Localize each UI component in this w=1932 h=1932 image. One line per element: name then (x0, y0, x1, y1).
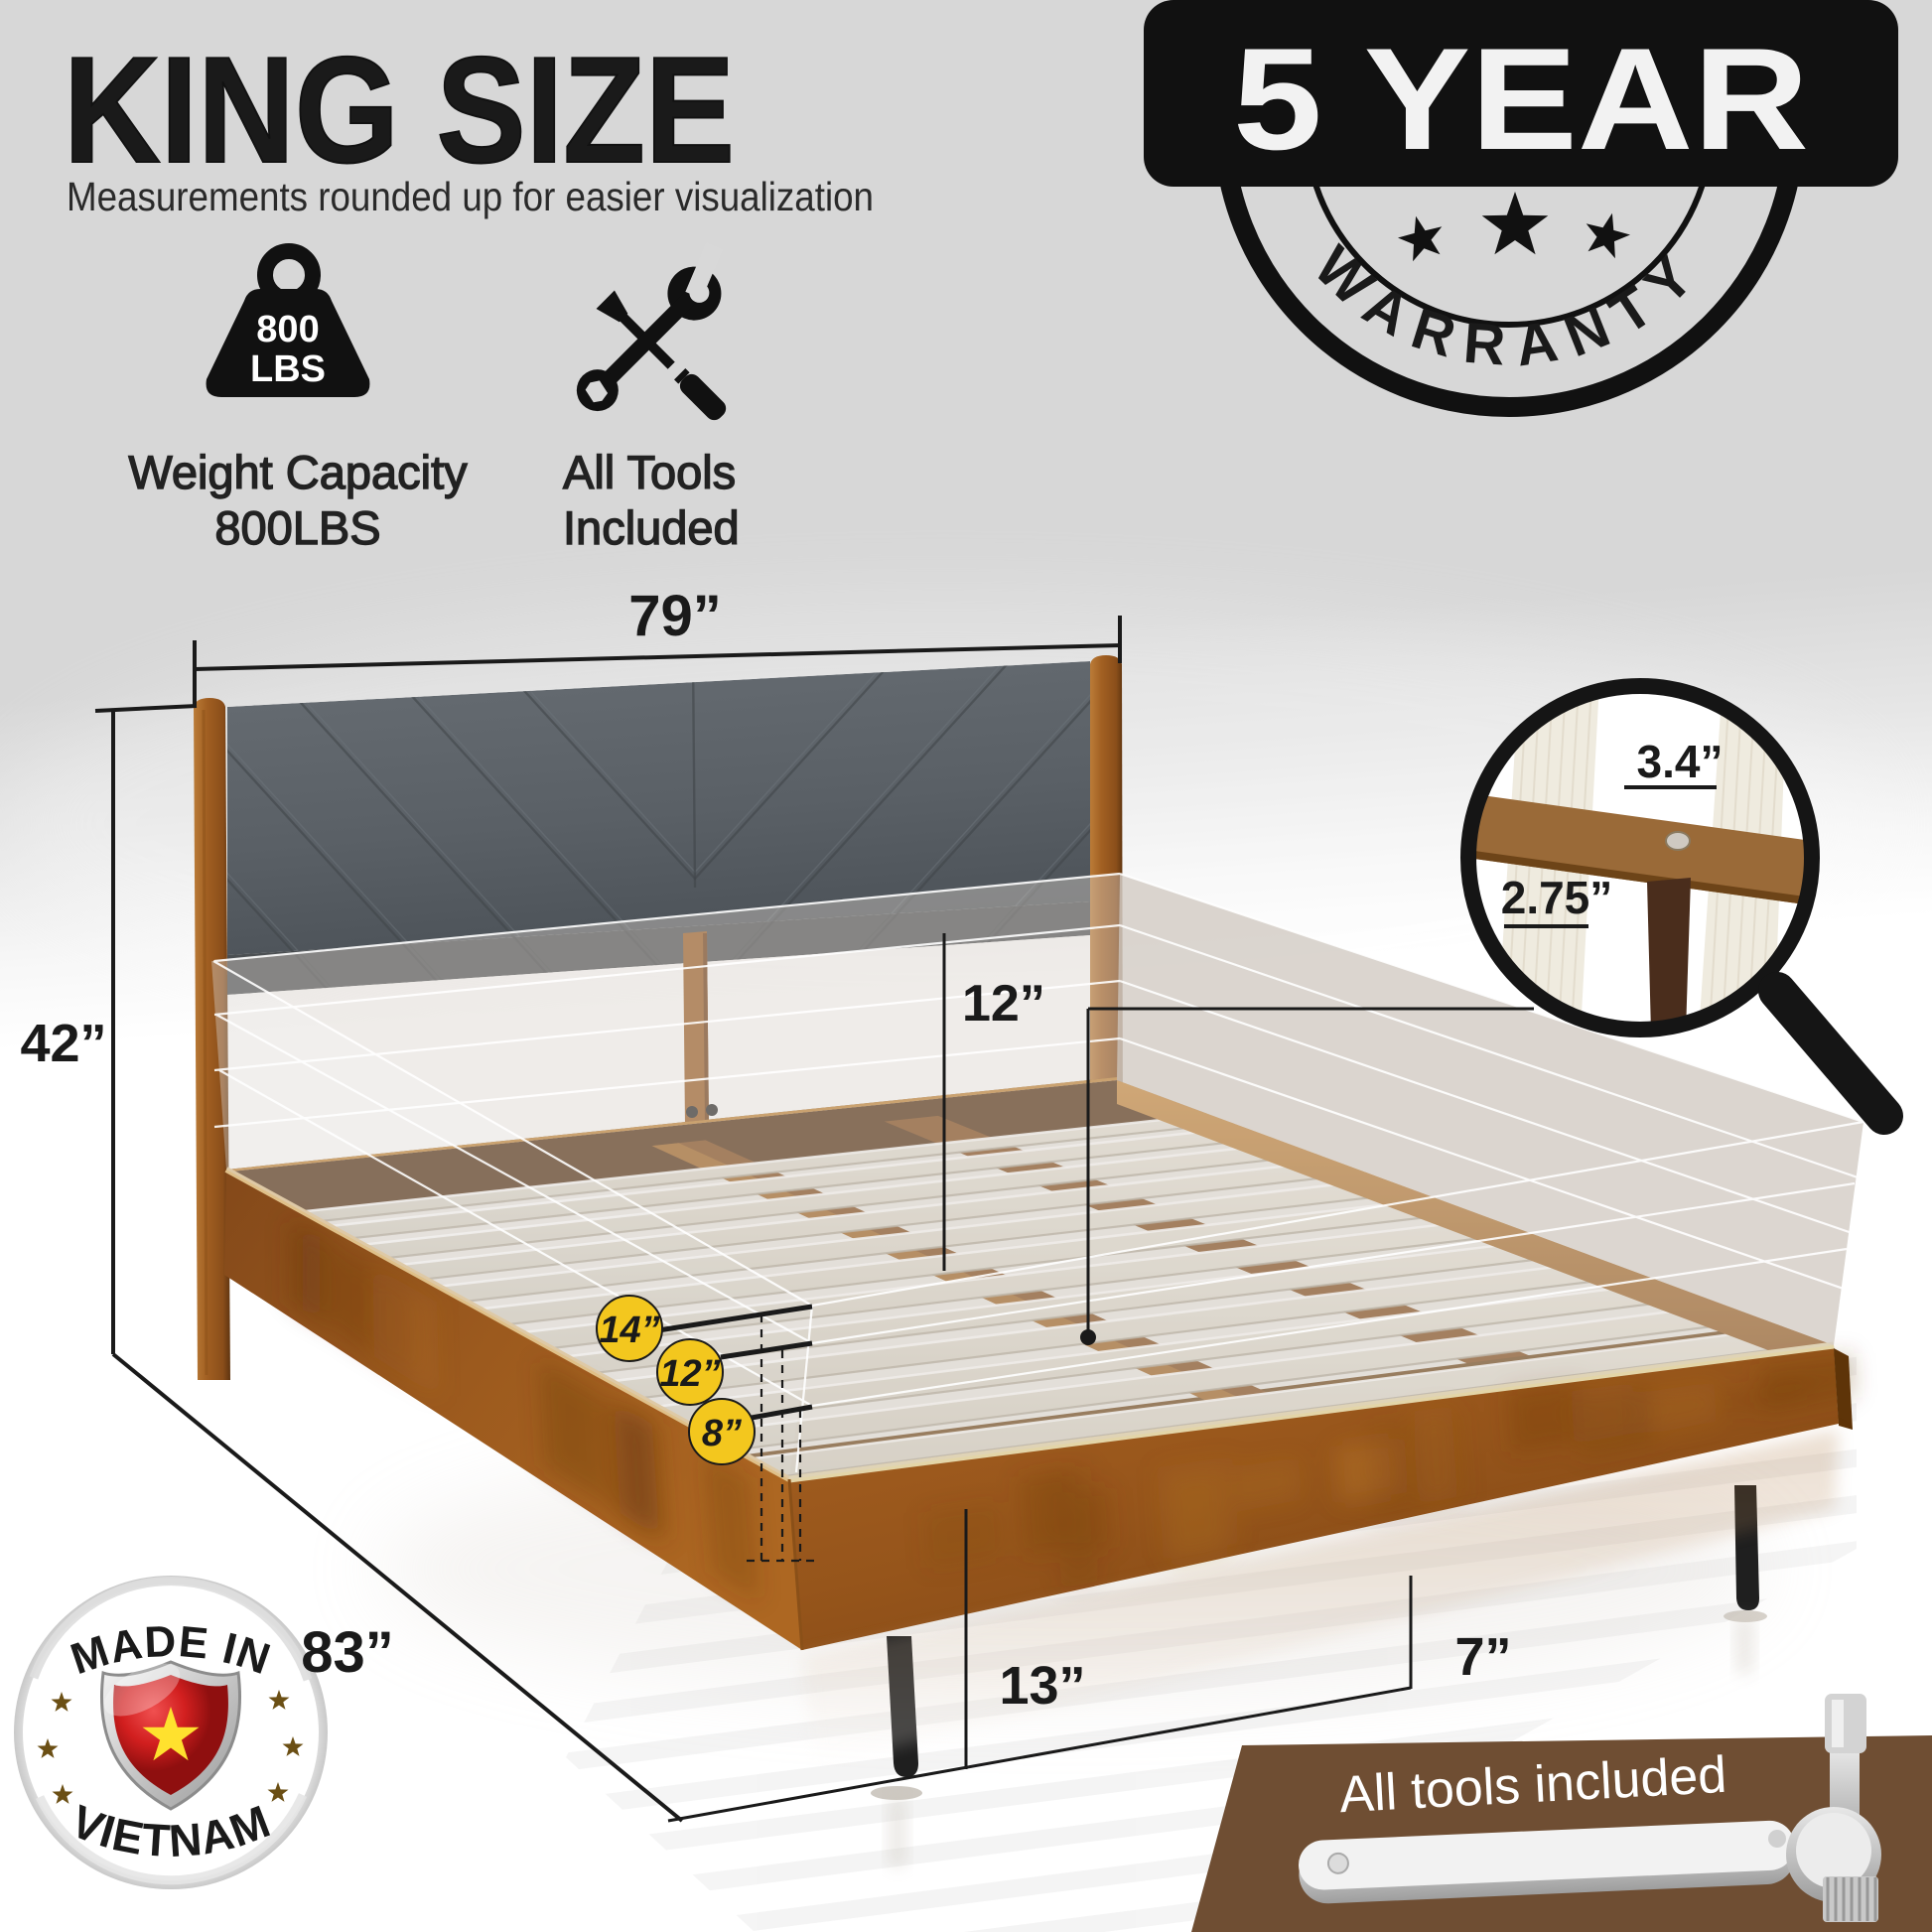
svg-text:Weight Capacity: Weight Capacity (128, 446, 468, 498)
svg-text:83”: 83” (301, 1620, 394, 1685)
svg-text:12”: 12” (962, 975, 1045, 1033)
svg-text:Included: Included (563, 501, 740, 554)
svg-text:79”: 79” (628, 584, 722, 648)
svg-text:800LBS: 800LBS (214, 501, 380, 554)
svg-text:42”: 42” (20, 1014, 106, 1073)
svg-text:All Tools: All Tools (563, 446, 736, 498)
svg-text:7”: 7” (1454, 1627, 1511, 1687)
svg-text:2.75”: 2.75” (1501, 872, 1613, 923)
svg-text:3.4”: 3.4” (1637, 736, 1724, 787)
svg-text:KING SIZE: KING SIZE (64, 26, 735, 195)
svg-text:12”: 12” (659, 1353, 720, 1395)
svg-text:800: 800 (256, 309, 319, 350)
svg-text:13”: 13” (999, 1656, 1085, 1716)
svg-text:5 YEAR: 5 YEAR (1233, 18, 1809, 180)
svg-text:LBS: LBS (250, 348, 326, 390)
svg-text:Measurements rounded up for ea: Measurements rounded up for easier visua… (67, 174, 874, 219)
svg-text:8”: 8” (702, 1413, 742, 1454)
svg-text:14”: 14” (599, 1310, 659, 1351)
